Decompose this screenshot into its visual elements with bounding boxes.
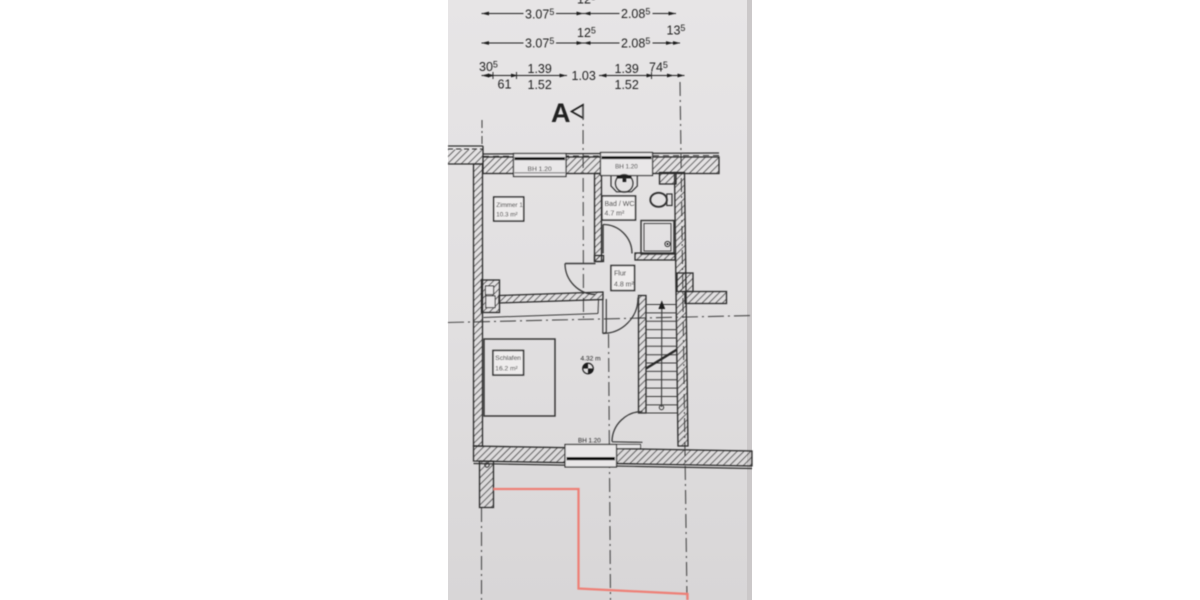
svg-text:BH 1.20: BH 1.20	[528, 166, 552, 173]
svg-text:A: A	[551, 98, 571, 128]
svg-text:Schlafen: Schlafen	[495, 355, 521, 362]
svg-text:1.52: 1.52	[528, 78, 552, 92]
svg-text:Bad / WC: Bad / WC	[605, 201, 635, 208]
svg-text:4.7 m²: 4.7 m²	[605, 211, 626, 218]
svg-text:Flur: Flur	[614, 271, 627, 278]
svg-text:1.39: 1.39	[528, 62, 552, 76]
svg-text:4.32 m: 4.32 m	[581, 355, 602, 362]
svg-text:1.03: 1.03	[572, 69, 596, 83]
svg-text:10.3 m²: 10.3 m²	[496, 212, 517, 219]
svg-text:Zimmer 1: Zimmer 1	[496, 202, 523, 209]
svg-text:16.2 m²: 16.2 m²	[495, 366, 518, 373]
svg-text:61: 61	[498, 78, 512, 92]
svg-text:4.8 m²: 4.8 m²	[614, 282, 635, 289]
svg-text:BH 1.20: BH 1.20	[615, 163, 638, 170]
svg-text:BH 1.20: BH 1.20	[578, 437, 601, 444]
svg-text:1.39: 1.39	[615, 62, 639, 76]
svg-text:1.52: 1.52	[615, 78, 639, 92]
